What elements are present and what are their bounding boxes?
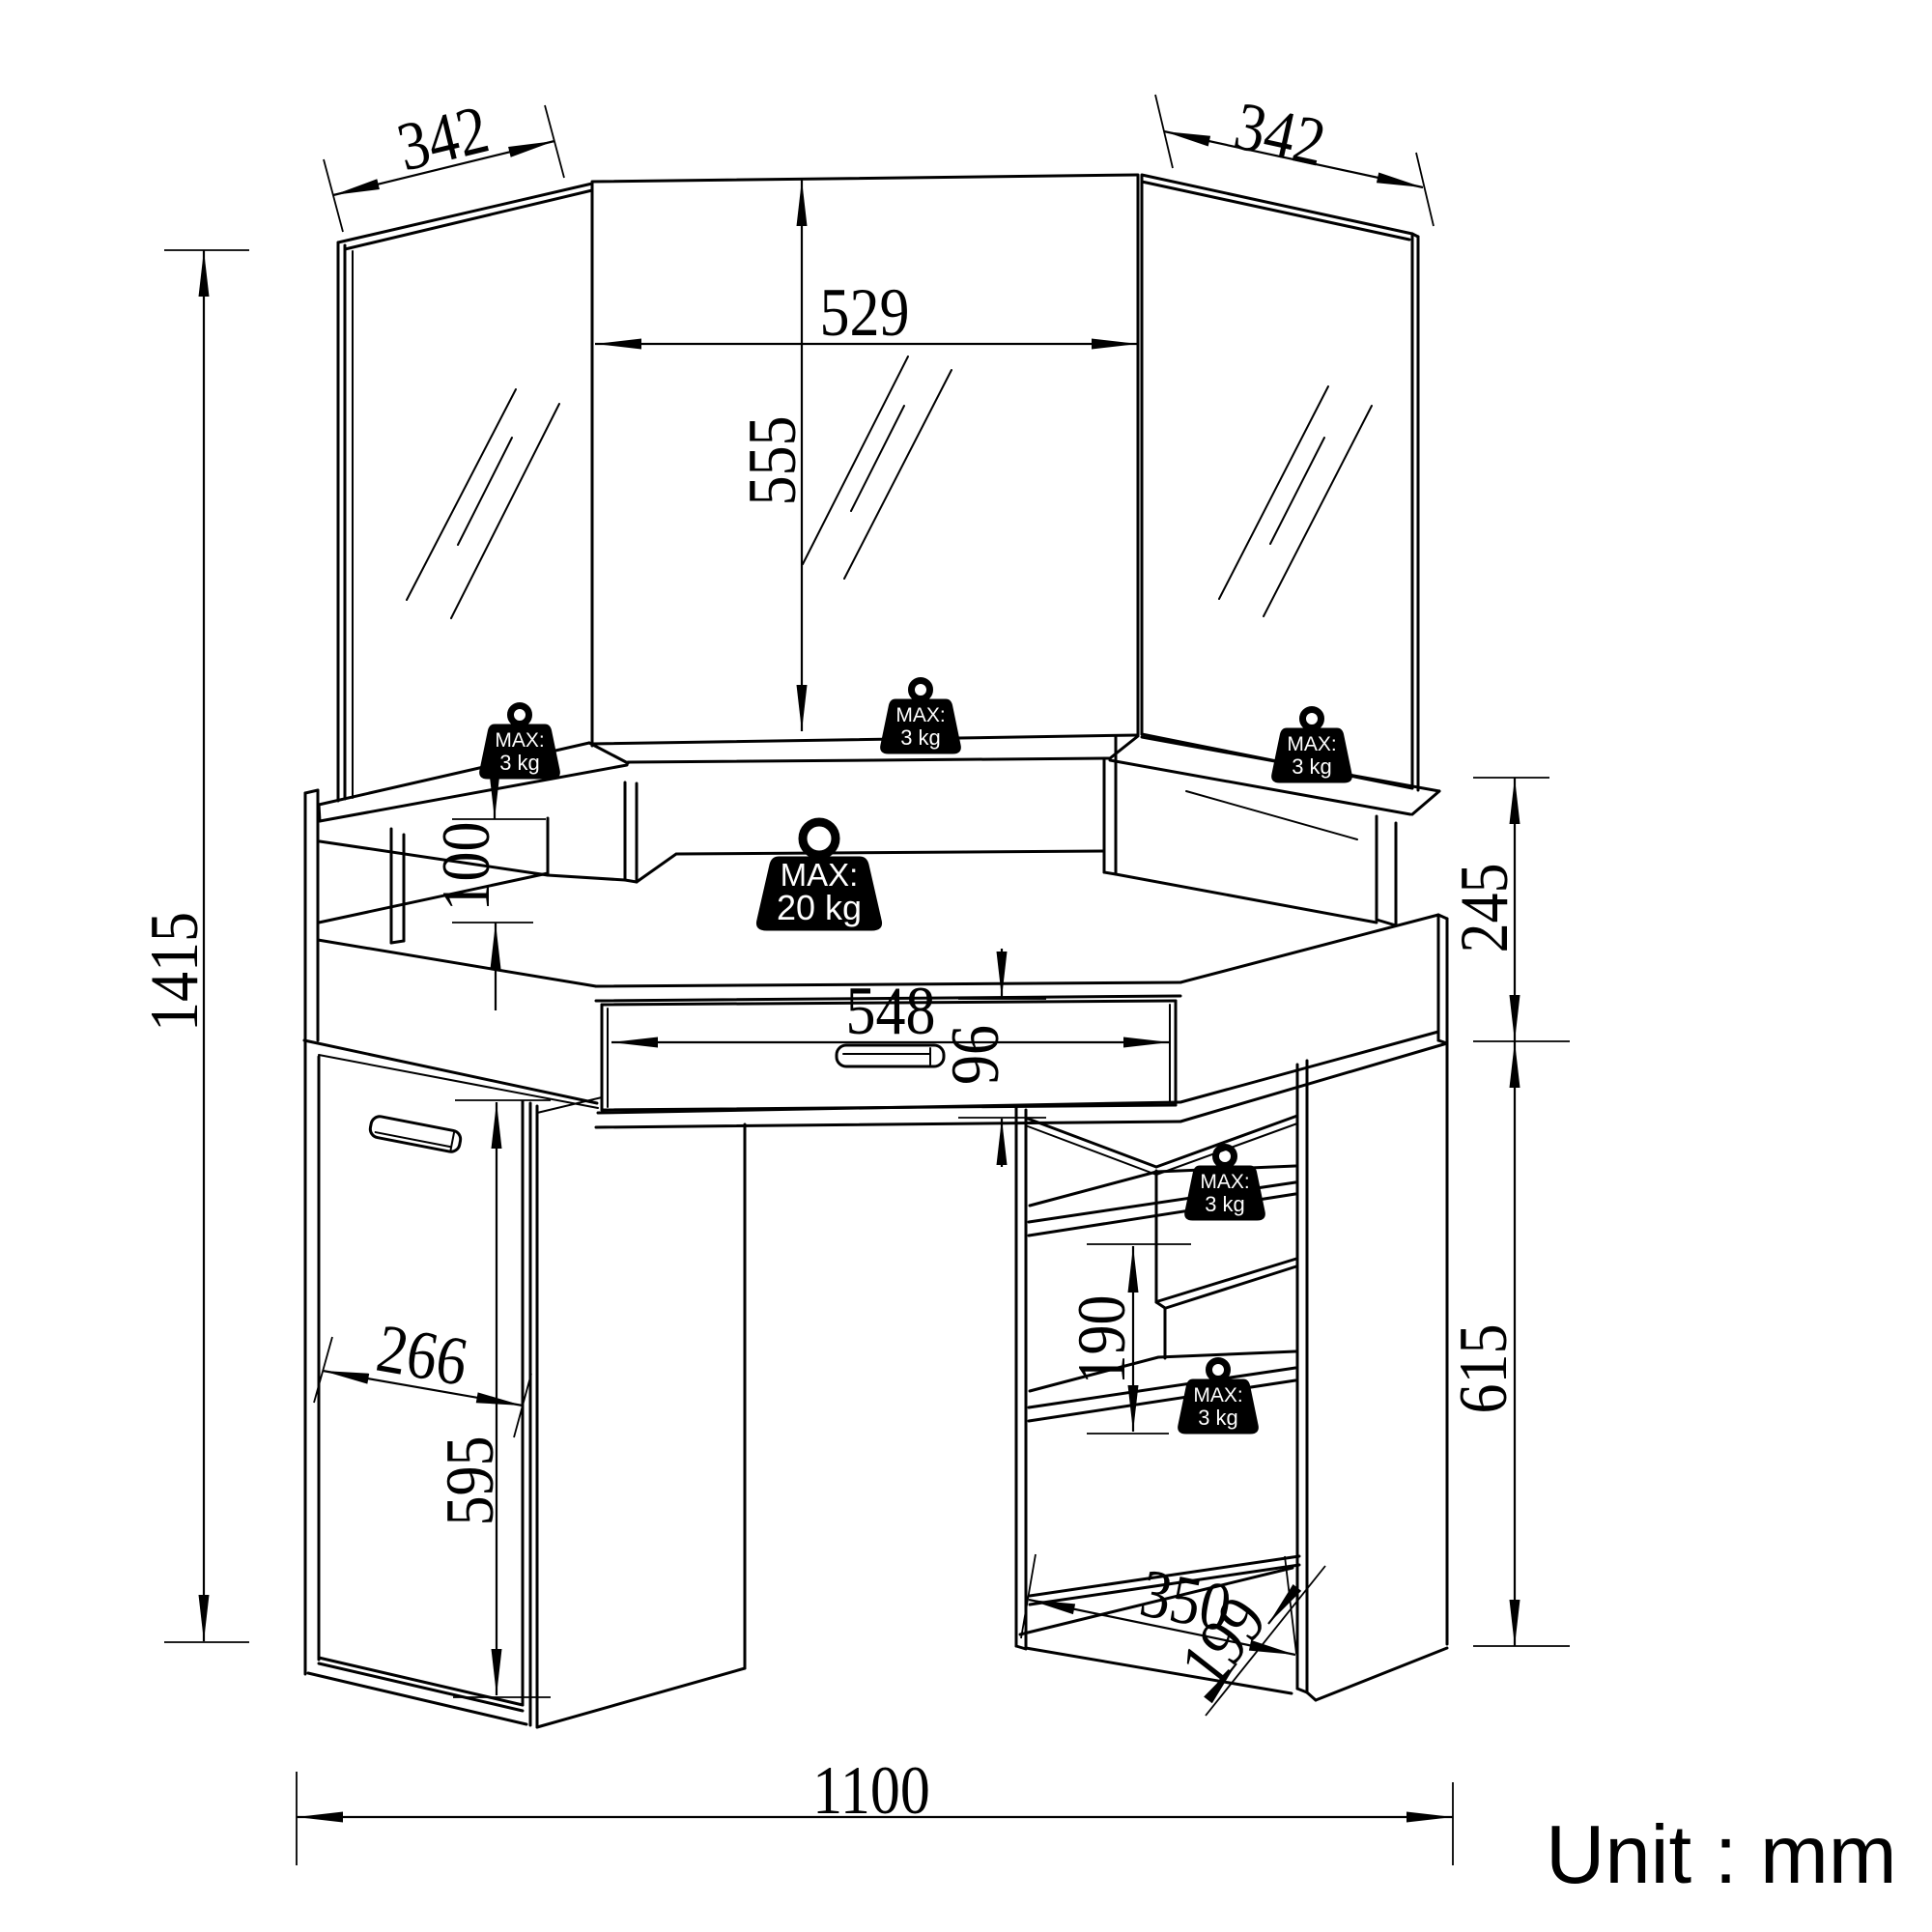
svg-text:245: 245 <box>1446 864 1522 953</box>
svg-text:529: 529 <box>820 274 910 351</box>
svg-text:Unit : mm: Unit : mm <box>1546 1809 1897 1901</box>
svg-text:595: 595 <box>432 1436 508 1526</box>
svg-text:100: 100 <box>428 822 504 912</box>
svg-text:1415: 1415 <box>136 912 213 1032</box>
svg-text:548: 548 <box>846 973 936 1049</box>
svg-text:1100: 1100 <box>812 1752 930 1829</box>
svg-text:266: 266 <box>371 1310 472 1401</box>
svg-text:555: 555 <box>734 416 810 506</box>
svg-text:96: 96 <box>937 1025 1013 1085</box>
svg-text:615: 615 <box>1445 1324 1521 1414</box>
svg-text:190: 190 <box>1064 1295 1140 1385</box>
